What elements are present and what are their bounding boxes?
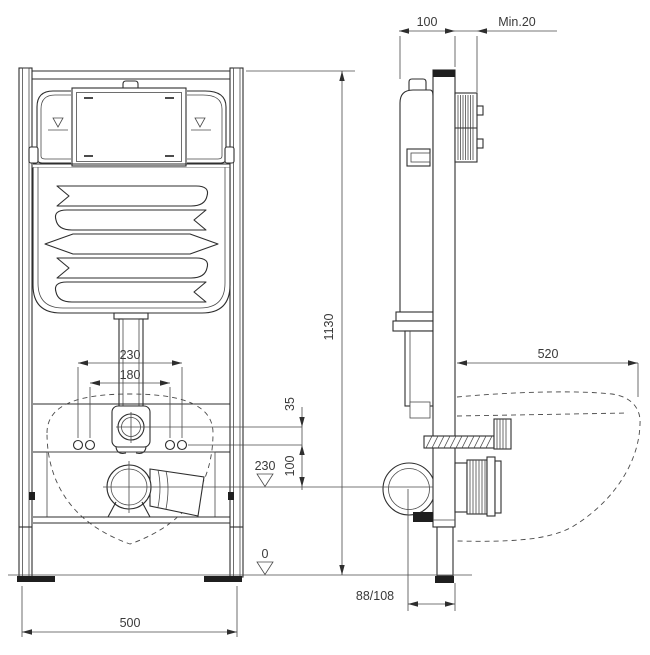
label-drain-height: 230 xyxy=(255,459,276,473)
side-leg xyxy=(437,527,453,576)
wall-mount-block xyxy=(455,93,483,162)
dim-floor-level: 0 xyxy=(257,547,273,575)
elbow-bracket xyxy=(413,512,433,522)
dim-frame-height: 1130 xyxy=(246,71,355,575)
label-frame-height: 1130 xyxy=(322,314,336,341)
cistern-profile xyxy=(393,79,433,418)
cistern-side-panel-left xyxy=(37,91,71,163)
side-foot xyxy=(435,576,454,583)
label-floor-level: 0 xyxy=(262,547,269,561)
dim-drain-height: 230 xyxy=(255,459,276,487)
inlet-connection xyxy=(112,406,150,453)
front-view xyxy=(17,68,243,582)
cistern-cap xyxy=(409,79,426,90)
drawing-svg: 100 Min.20 1130 520 230 xyxy=(0,0,650,650)
dim-bowl-depth: 520 xyxy=(457,347,638,397)
flush-elbow xyxy=(383,463,435,515)
frame-rail-right xyxy=(230,68,243,577)
side-view xyxy=(383,70,640,583)
label-bolt-to-drain: 100 xyxy=(283,456,297,477)
label-wall-min: Min.20 xyxy=(498,15,536,29)
cistern-side-panel-right xyxy=(187,91,226,163)
rail-clip-right xyxy=(225,147,234,163)
label-frame-depth: 100 xyxy=(417,15,438,29)
cistern-body xyxy=(33,168,230,314)
foot-right xyxy=(204,576,242,582)
label-flush-bend-width: 230 xyxy=(120,348,141,362)
foot-left xyxy=(17,576,55,582)
label-bolt-spacing: 180 xyxy=(120,368,141,382)
label-inlet-offset: 35 xyxy=(283,397,297,411)
technical-drawing-toilet-frame: 100 Min.20 1130 520 230 xyxy=(0,0,650,650)
label-frame-width: 500 xyxy=(120,616,141,630)
dim-frame-width: 500 xyxy=(22,586,237,637)
access-window xyxy=(72,88,186,166)
rail-lug-left xyxy=(29,492,35,500)
drain-connector xyxy=(455,457,501,516)
rail-clip-left xyxy=(29,147,38,163)
rail-lug-right xyxy=(228,492,234,500)
label-bowl-depth: 520 xyxy=(538,347,559,361)
frame-rail-left xyxy=(19,68,32,577)
label-drain-pipe: 88/108 xyxy=(356,589,394,603)
top-crossbar xyxy=(32,71,230,79)
drain-outlet xyxy=(107,461,204,517)
